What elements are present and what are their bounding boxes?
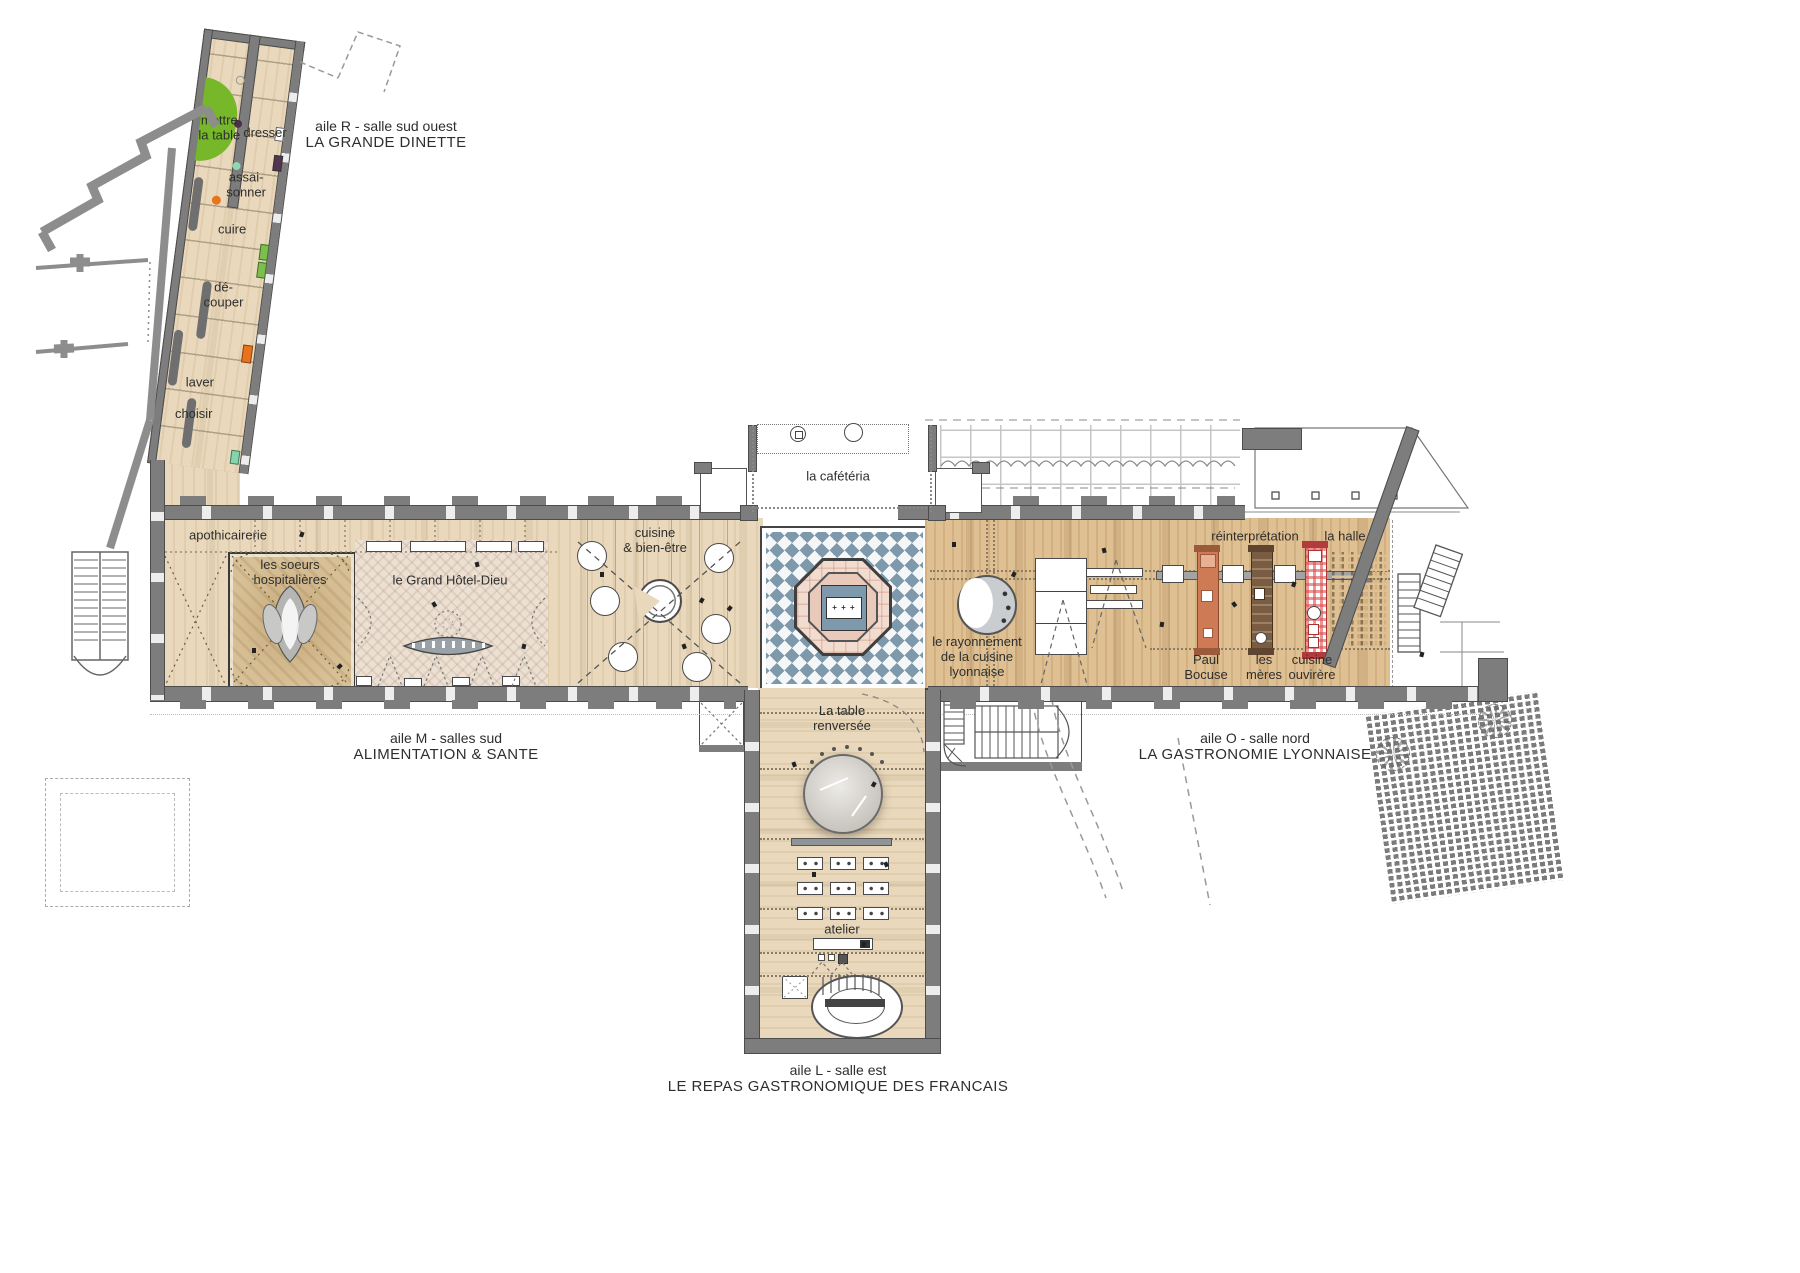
cafeteria-dotted-east (930, 425, 932, 512)
annotation-aile-l-line2: LE REPAS GASTRONOMIQUE DES FRANCAIS (668, 1078, 1008, 1095)
ghd-bench-3 (476, 541, 512, 552)
annotation-aile-r-line1: aile R - salle sud ouest (306, 118, 467, 134)
annotation-aile-m-line2: ALIMENTATION & SANTE (354, 746, 539, 763)
annotation-aile-m: aile M - salles sud ALIMENTATION & SANTE (354, 730, 539, 763)
aile-l-details (782, 694, 924, 999)
room-label-rayonnement: le rayonnement de la cuisine lyonnaise (932, 635, 1022, 679)
cuisine-bien-etre-details (578, 542, 740, 683)
annotation-aile-o-line2: LA GASTRONOMIE LYONNAISE (1139, 746, 1372, 763)
annotation-aile-o-line1: aile O - salle nord (1139, 730, 1372, 746)
floor-plan: + + + (0, 0, 1800, 1273)
annotation-aile-r-line2: LA GRANDE DINETTE (306, 134, 467, 151)
wing-r-top-ghost (300, 32, 400, 92)
aile-l-south-wall (744, 1038, 941, 1054)
aile-l-west-wall (744, 690, 760, 1052)
ghost-west-building (36, 108, 216, 548)
west-staircase (72, 552, 128, 675)
cafeteria-dotted-south (757, 507, 927, 509)
aile-o-south-pilasters (950, 700, 1480, 709)
room-label-les-meres: les mères (1246, 653, 1282, 683)
aile-o-north-pilasters (945, 496, 1235, 505)
east-corner-wall (1478, 658, 1508, 702)
aile-m-south-pilasters (180, 700, 736, 709)
ghd-bench-1 (366, 541, 402, 552)
room-label-cuisine-ouvriere: cuisine ouvirère (1289, 653, 1336, 683)
aile-m-north-pilasters (180, 496, 736, 505)
room-label-atelier: atelier (824, 923, 859, 938)
aile-l-east-wall (925, 690, 941, 1052)
annotation-aile-m-line1: aile M - salles sud (354, 730, 539, 746)
room-label-reinterpretation: réinterprétation (1211, 530, 1298, 545)
room-label-apothicairerie: apothicairerie (189, 529, 267, 544)
room-label-paul-bocuse: Paul Bocuse (1184, 653, 1227, 683)
annotation-aile-l-line1: aile L - salle est (668, 1062, 1008, 1078)
aile-m-west-wall (150, 460, 165, 700)
ghd-bench-4 (518, 541, 544, 552)
courtyard-notch-wall (1242, 428, 1302, 450)
room-label-table-renversee: La table renversée (813, 704, 871, 734)
ghd-bench-2 (410, 541, 466, 552)
room-label-la-halle: la halle (1324, 530, 1365, 545)
cafeteria-pillar-east-cap1 (972, 462, 990, 474)
hotel-dieu-details (358, 598, 545, 686)
room-label-cuisine-bien-etre: cuisine & bien-être (623, 526, 687, 556)
annotation-aile-r: aile R - salle sud ouest LA GRANDE DINET… (306, 118, 467, 151)
room-label-cafeteria: la cafétéria (806, 470, 870, 485)
annotation-aile-o: aile O - salle nord LA GASTRONOMIE LYONN… (1139, 730, 1372, 763)
cafeteria-pillar-west-cap2 (740, 505, 758, 521)
cafeteria-dotted-west (752, 425, 754, 512)
easel-triangle (1040, 560, 1146, 688)
cafeteria-pillar-west-cap1 (694, 462, 712, 474)
room-label-grand-hotel-dieu: le Grand Hôtel-Dieu (393, 574, 508, 589)
annotation-aile-l: aile L - salle est LE REPAS GASTRONOMIQU… (668, 1062, 1008, 1095)
aile-m-north-wall (150, 505, 748, 520)
room-label-soeurs: les soeurs hospitalières (254, 558, 327, 588)
